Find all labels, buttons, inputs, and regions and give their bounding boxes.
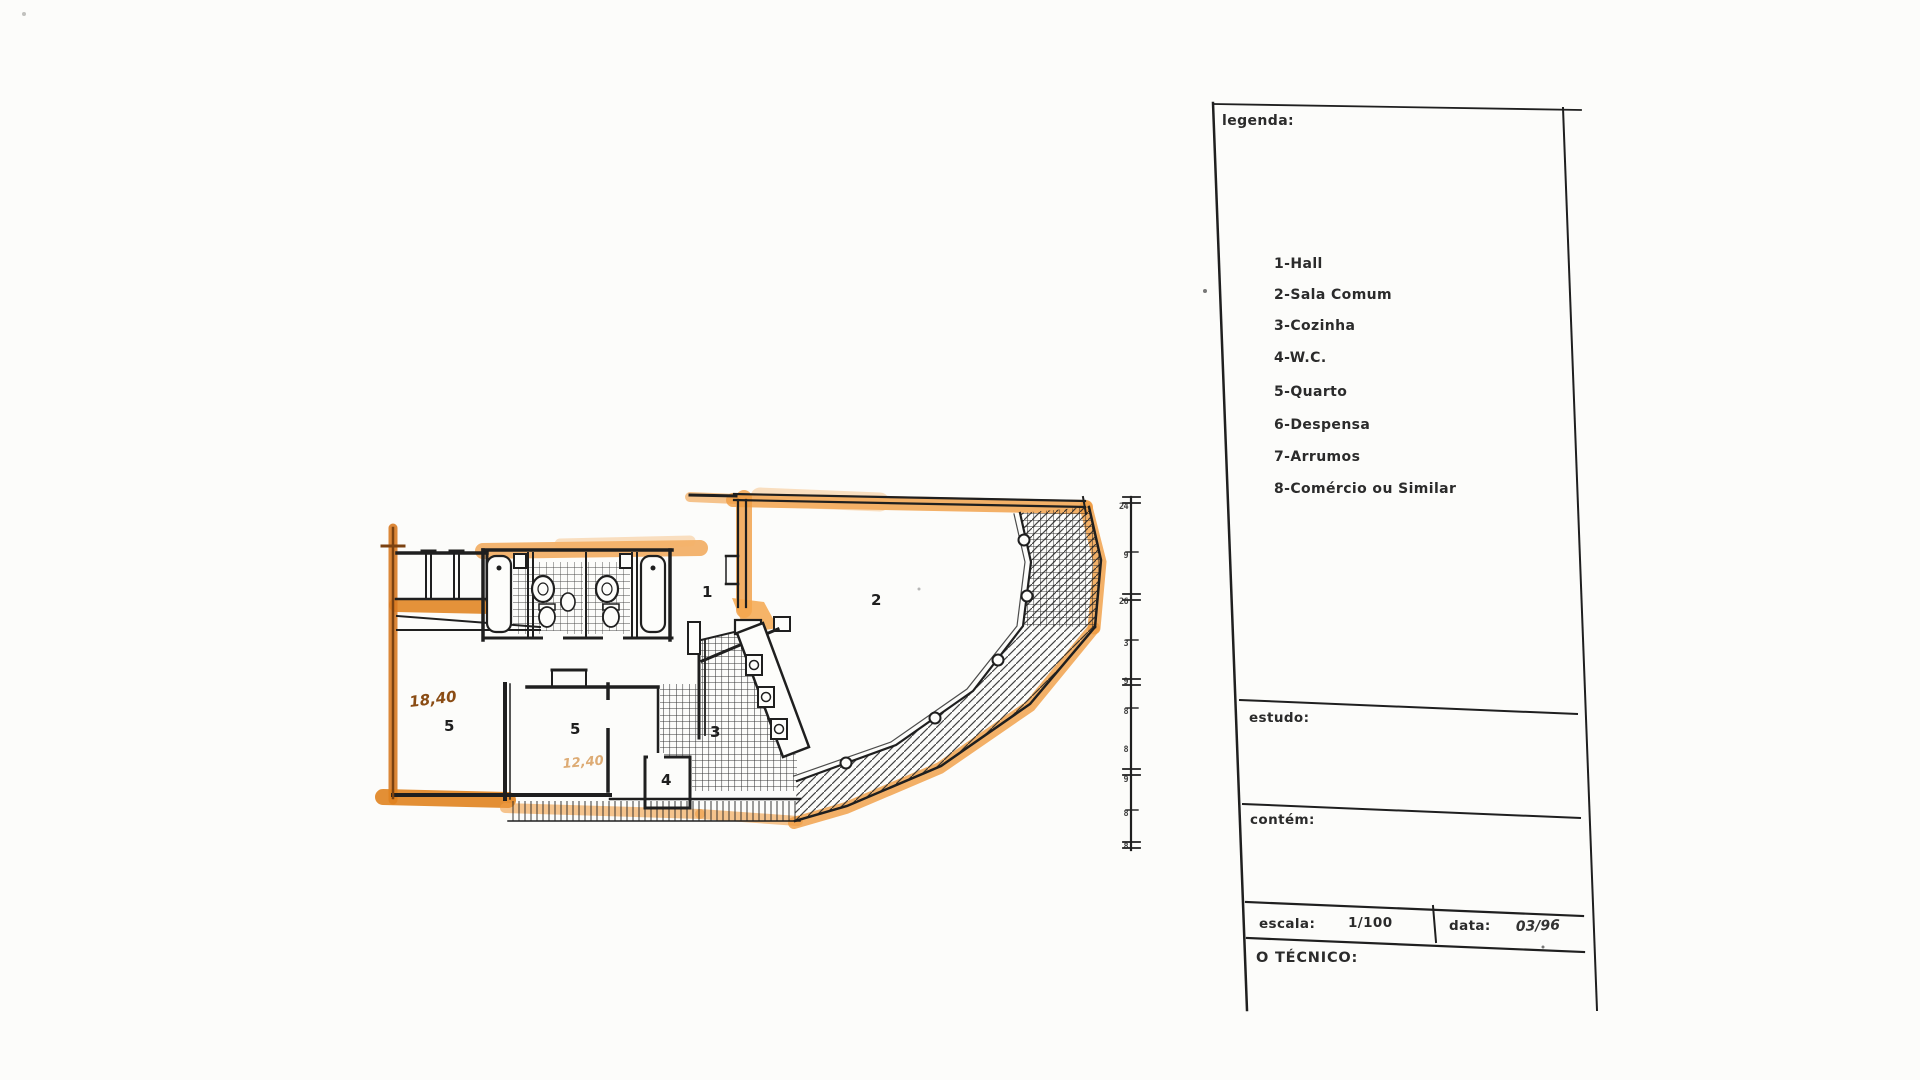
scan-speck [1542, 946, 1545, 949]
sink-bowl [762, 693, 771, 702]
room-label-sala: 2 [871, 591, 881, 609]
scanned-floor-plan-page: 1 2 3 4 5 5 18,40 12,40 [0, 0, 1920, 1080]
ruler-tick-label: 26 [1119, 597, 1129, 607]
tecnico-label: O TÉCNICO: [1256, 949, 1358, 966]
room-label-quarto-2: 5 [570, 720, 580, 738]
legend-item: 5-Quarto [1274, 384, 1347, 400]
room-label-cozinha: 3 [710, 723, 720, 741]
page-background [0, 0, 1920, 1080]
scan-speck [22, 12, 26, 16]
ruler-tick-label: 3 [1123, 639, 1128, 649]
ruler-tick-label: 24 [1119, 502, 1129, 512]
ruler-tick-label: 8 [1123, 745, 1128, 755]
legend-item: 3-Cozinha [1274, 318, 1355, 334]
ruler-tick-label: 8 [1123, 842, 1128, 852]
estudo-label: estudo: [1249, 710, 1309, 726]
sink-bowl [750, 661, 759, 670]
escala-label: escala: [1259, 916, 1315, 932]
room-label-quarto-1: 5 [444, 717, 454, 735]
toilet [603, 607, 619, 627]
data-label: data: [1449, 918, 1491, 934]
toilet [539, 607, 555, 627]
scan-speck [1203, 289, 1207, 293]
escala-value: 1/100 [1348, 915, 1393, 931]
legend-item: 6-Despensa [1274, 417, 1370, 433]
data-value: 03/96 [1516, 917, 1561, 935]
room-label-wc: 4 [661, 771, 671, 789]
legend-item: 4-W.C. [1274, 350, 1327, 366]
ruler-tick-label: 8 [1123, 809, 1128, 819]
ruler-tick-label: 9 [1123, 677, 1128, 687]
legend-item: 8-Comércio ou Similar [1274, 481, 1456, 497]
ruler-tick-label: 9 [1123, 551, 1128, 561]
scan-speck [918, 588, 921, 591]
legend-item: 2-Sala Comum [1274, 287, 1392, 303]
room-label-hall: 1 [702, 583, 712, 601]
bidet [561, 593, 575, 611]
ruler-tick-label: 9 [1123, 775, 1128, 785]
legend-item: 1-Hall [1274, 256, 1323, 272]
ruler-tick-label: 8 [1123, 707, 1128, 717]
stove-burner [775, 725, 784, 734]
contem-label: contém: [1250, 812, 1315, 828]
legend-title: legenda: [1222, 113, 1294, 129]
legend-item: 7-Arrumos [1274, 449, 1360, 465]
